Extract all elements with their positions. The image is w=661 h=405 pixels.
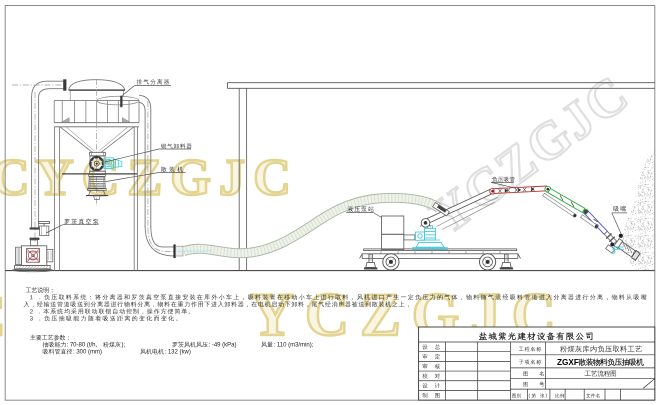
svg-text:: -49 (kPa): : -49 (kPa) bbox=[209, 343, 237, 349]
svg-text:: 110 (m3/min);: : 110 (m3/min); bbox=[274, 343, 314, 349]
svg-text:C: C bbox=[0, 150, 30, 207]
svg-text:ZGXF: ZGXF bbox=[557, 358, 579, 367]
svg-text:: 70-80 (t/h,: : 70-80 (t/h, bbox=[67, 343, 98, 349]
svg-text:);: ); bbox=[122, 343, 126, 349]
svg-text:YCZGJC: YCZGJC bbox=[36, 150, 299, 207]
svg-text:: 132 (kw): : 132 (kw) bbox=[165, 350, 191, 356]
svg-text:: 300 (mm): : 300 (mm) bbox=[73, 350, 102, 356]
